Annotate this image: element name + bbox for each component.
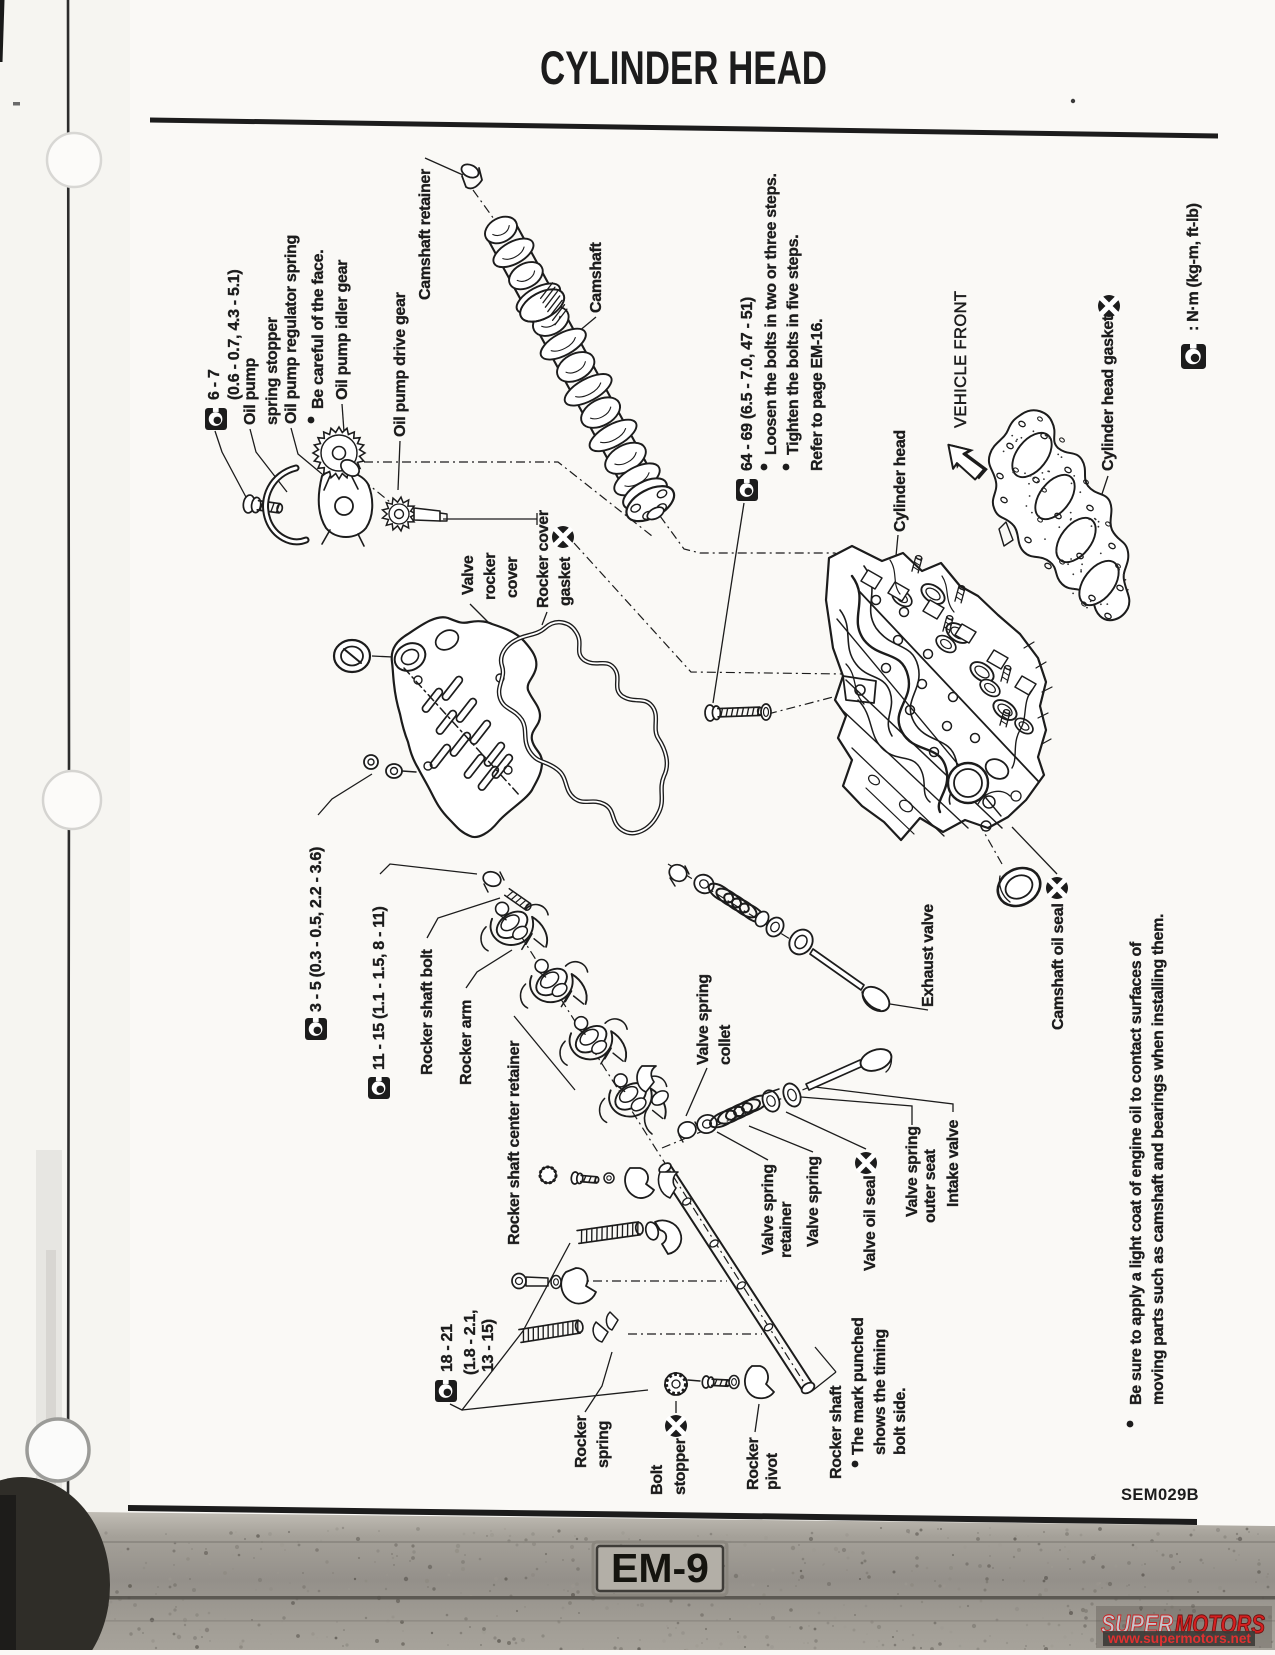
svg-text:Rocker arm: Rocker arm xyxy=(458,1000,475,1085)
svg-text:Camshaft retainer: Camshaft retainer xyxy=(417,169,434,300)
svg-text:Intake valve: Intake valve xyxy=(945,1119,962,1207)
svg-text:Rocker: Rocker xyxy=(573,1415,590,1468)
svg-text:Be careful of the face.: Be careful of the face. xyxy=(310,250,327,409)
svg-text:pivot: pivot xyxy=(764,1452,781,1490)
svg-text:Rocker cover: Rocker cover xyxy=(535,510,552,608)
svg-text:Cylinder head gasket: Cylinder head gasket xyxy=(1100,315,1117,471)
svg-text:outer seat: outer seat xyxy=(922,1149,939,1223)
svg-text:Exhaust valve: Exhaust valve xyxy=(920,904,937,1007)
svg-text:cover: cover xyxy=(504,557,521,598)
svg-text:13 - 15): 13 - 15) xyxy=(480,1319,497,1372)
svg-text:Valve: Valve xyxy=(460,555,477,595)
svg-text:Rocker shaft center retainer: Rocker shaft center retainer xyxy=(506,1041,523,1245)
svg-text:Cylinder head: Cylinder head xyxy=(892,430,909,532)
svg-text:Be sure to apply a light coat: Be sure to apply a light coat of engine … xyxy=(1128,941,1145,1405)
svg-text:EM-9: EM-9 xyxy=(611,1545,709,1591)
svg-text:6 - 7: 6 - 7 xyxy=(206,369,223,400)
svg-text:CYLINDER HEAD: CYLINDER HEAD xyxy=(540,41,827,94)
svg-text:64 - 69 (6.5 - 7.0, 47 - 51): 64 - 69 (6.5 - 7.0, 47 - 51) xyxy=(739,297,756,471)
svg-text:spring stopper: spring stopper xyxy=(264,317,281,425)
svg-text:moving parts such as camshaft: moving parts such as camshaft and bearin… xyxy=(1150,914,1167,1405)
svg-text:Oil pump idler gear: Oil pump idler gear xyxy=(334,260,351,400)
svg-text:Valve spring: Valve spring xyxy=(760,1164,777,1255)
svg-text:Tighten the bolts in five step: Tighten the bolts in five steps. xyxy=(785,235,802,455)
svg-text:(0.6 - 0.7, 4.3 - 5.1): (0.6 - 0.7, 4.3 - 5.1) xyxy=(226,270,243,400)
svg-text:Refer to page EM-16.: Refer to page EM-16. xyxy=(809,319,826,471)
svg-text:gasket: gasket xyxy=(557,556,574,606)
svg-text:Valve spring: Valve spring xyxy=(695,974,712,1065)
svg-text:spring: spring xyxy=(595,1421,612,1468)
svg-text:Rocker: Rocker xyxy=(745,1437,762,1490)
svg-text:Oil pump regulator spring: Oil pump regulator spring xyxy=(283,235,300,424)
svg-text:Camshaft oil seal: Camshaft oil seal xyxy=(1050,903,1067,1030)
svg-text:shows the timing: shows the timing xyxy=(872,1329,889,1455)
svg-text:Oil pump drive gear: Oil pump drive gear xyxy=(392,292,409,437)
svg-text:Valve spring: Valve spring xyxy=(904,1126,921,1217)
svg-text:bolt side.: bolt side. xyxy=(892,1388,909,1455)
svg-text:www.supermotors.net: www.supermotors.net xyxy=(1107,1631,1252,1646)
svg-text:VEHICLE FRONT: VEHICLE FRONT xyxy=(952,291,970,428)
svg-text:Valve oil seal: Valve oil seal xyxy=(862,1176,879,1271)
svg-text:Valve spring: Valve spring xyxy=(805,1156,822,1247)
svg-text:11 - 15 (1.1 - 1.5, 8 - 11): 11 - 15 (1.1 - 1.5, 8 - 11) xyxy=(371,906,388,1070)
svg-text:Bolt: Bolt xyxy=(649,1464,666,1495)
svg-text:(1.8 - 2.1,: (1.8 - 2.1, xyxy=(462,1310,479,1375)
svg-text:Rocker shaft bolt: Rocker shaft bolt xyxy=(419,948,436,1075)
svg-text:The mark punched: The mark punched xyxy=(850,1318,867,1455)
svg-text:Camshaft: Camshaft xyxy=(588,242,605,313)
svg-text:Oil pump: Oil pump xyxy=(242,358,259,425)
svg-text:Loosen the bolts in two or thr: Loosen the bolts in two or three steps. xyxy=(763,173,780,455)
svg-text:3 - 5 (0.3 - 0.5, 2.2 - 3.6): 3 - 5 (0.3 - 0.5, 2.2 - 3.6) xyxy=(308,847,325,1012)
svg-text:collet: collet xyxy=(717,1024,734,1065)
svg-text:SEM029B: SEM029B xyxy=(1121,1486,1199,1504)
svg-text:stopper: stopper xyxy=(672,1438,689,1495)
svg-text:18 - 21: 18 - 21 xyxy=(439,1324,456,1372)
svg-text:: N·m (kg-m, ft-lb): : N·m (kg-m, ft-lb) xyxy=(1185,203,1202,331)
svg-text:Rocker shaft: Rocker shaft xyxy=(828,1385,845,1479)
svg-text:rocker: rocker xyxy=(482,553,499,600)
svg-text:retainer: retainer xyxy=(778,1202,795,1258)
